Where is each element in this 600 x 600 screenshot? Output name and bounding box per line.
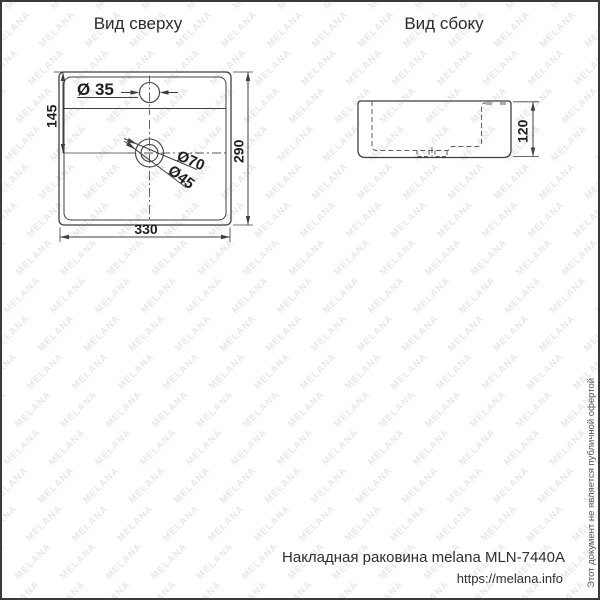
side-drain-tab-left <box>417 151 429 157</box>
side-hidden-contour <box>372 101 489 151</box>
side-mark-right <box>500 102 506 105</box>
drawing-sheet: MELANAMELANAMELANAMELANAMELANAMELANAMELA… <box>0 0 600 600</box>
technical-drawing: Вид сверху Ø 35 Ø70 <box>0 0 600 600</box>
dim-330-value: 330 <box>134 221 158 237</box>
product-caption: Накладная раковина melana MLN-7440A <box>0 549 565 566</box>
dim-330-arrow-right <box>221 235 230 239</box>
website-link[interactable]: https://melana.info <box>0 571 563 586</box>
faucet-arrow-right <box>160 90 169 94</box>
dim-120-value: 120 <box>515 119 531 143</box>
dim-145-arrow-bottom <box>61 144 65 153</box>
side-view-title: Вид сбоку <box>404 14 484 33</box>
top-view: Вид сверху Ø 35 Ø70 <box>44 14 254 242</box>
faucet-arrow-left <box>131 90 140 94</box>
faucet-diameter-label: Ø 35 <box>77 80 114 99</box>
dim-330-arrow-left <box>60 235 69 239</box>
side-outline <box>358 101 511 158</box>
dim-145-value: 145 <box>44 104 60 128</box>
dim-290-value: 290 <box>231 139 247 163</box>
dim-290-arrow-top <box>246 72 250 81</box>
top-view-title: Вид сверху <box>94 14 183 33</box>
side-mark-left <box>486 102 492 105</box>
disclaimer-note: Этот документ не является публичной офер… <box>586 378 597 588</box>
dim-120-arrow-bottom <box>531 148 535 157</box>
side-drain-tab-right <box>435 151 447 157</box>
side-view: Вид сбоку 120 <box>358 14 539 158</box>
dim-120-arrow-top <box>531 102 535 111</box>
dim-290-arrow-bottom <box>246 216 250 225</box>
